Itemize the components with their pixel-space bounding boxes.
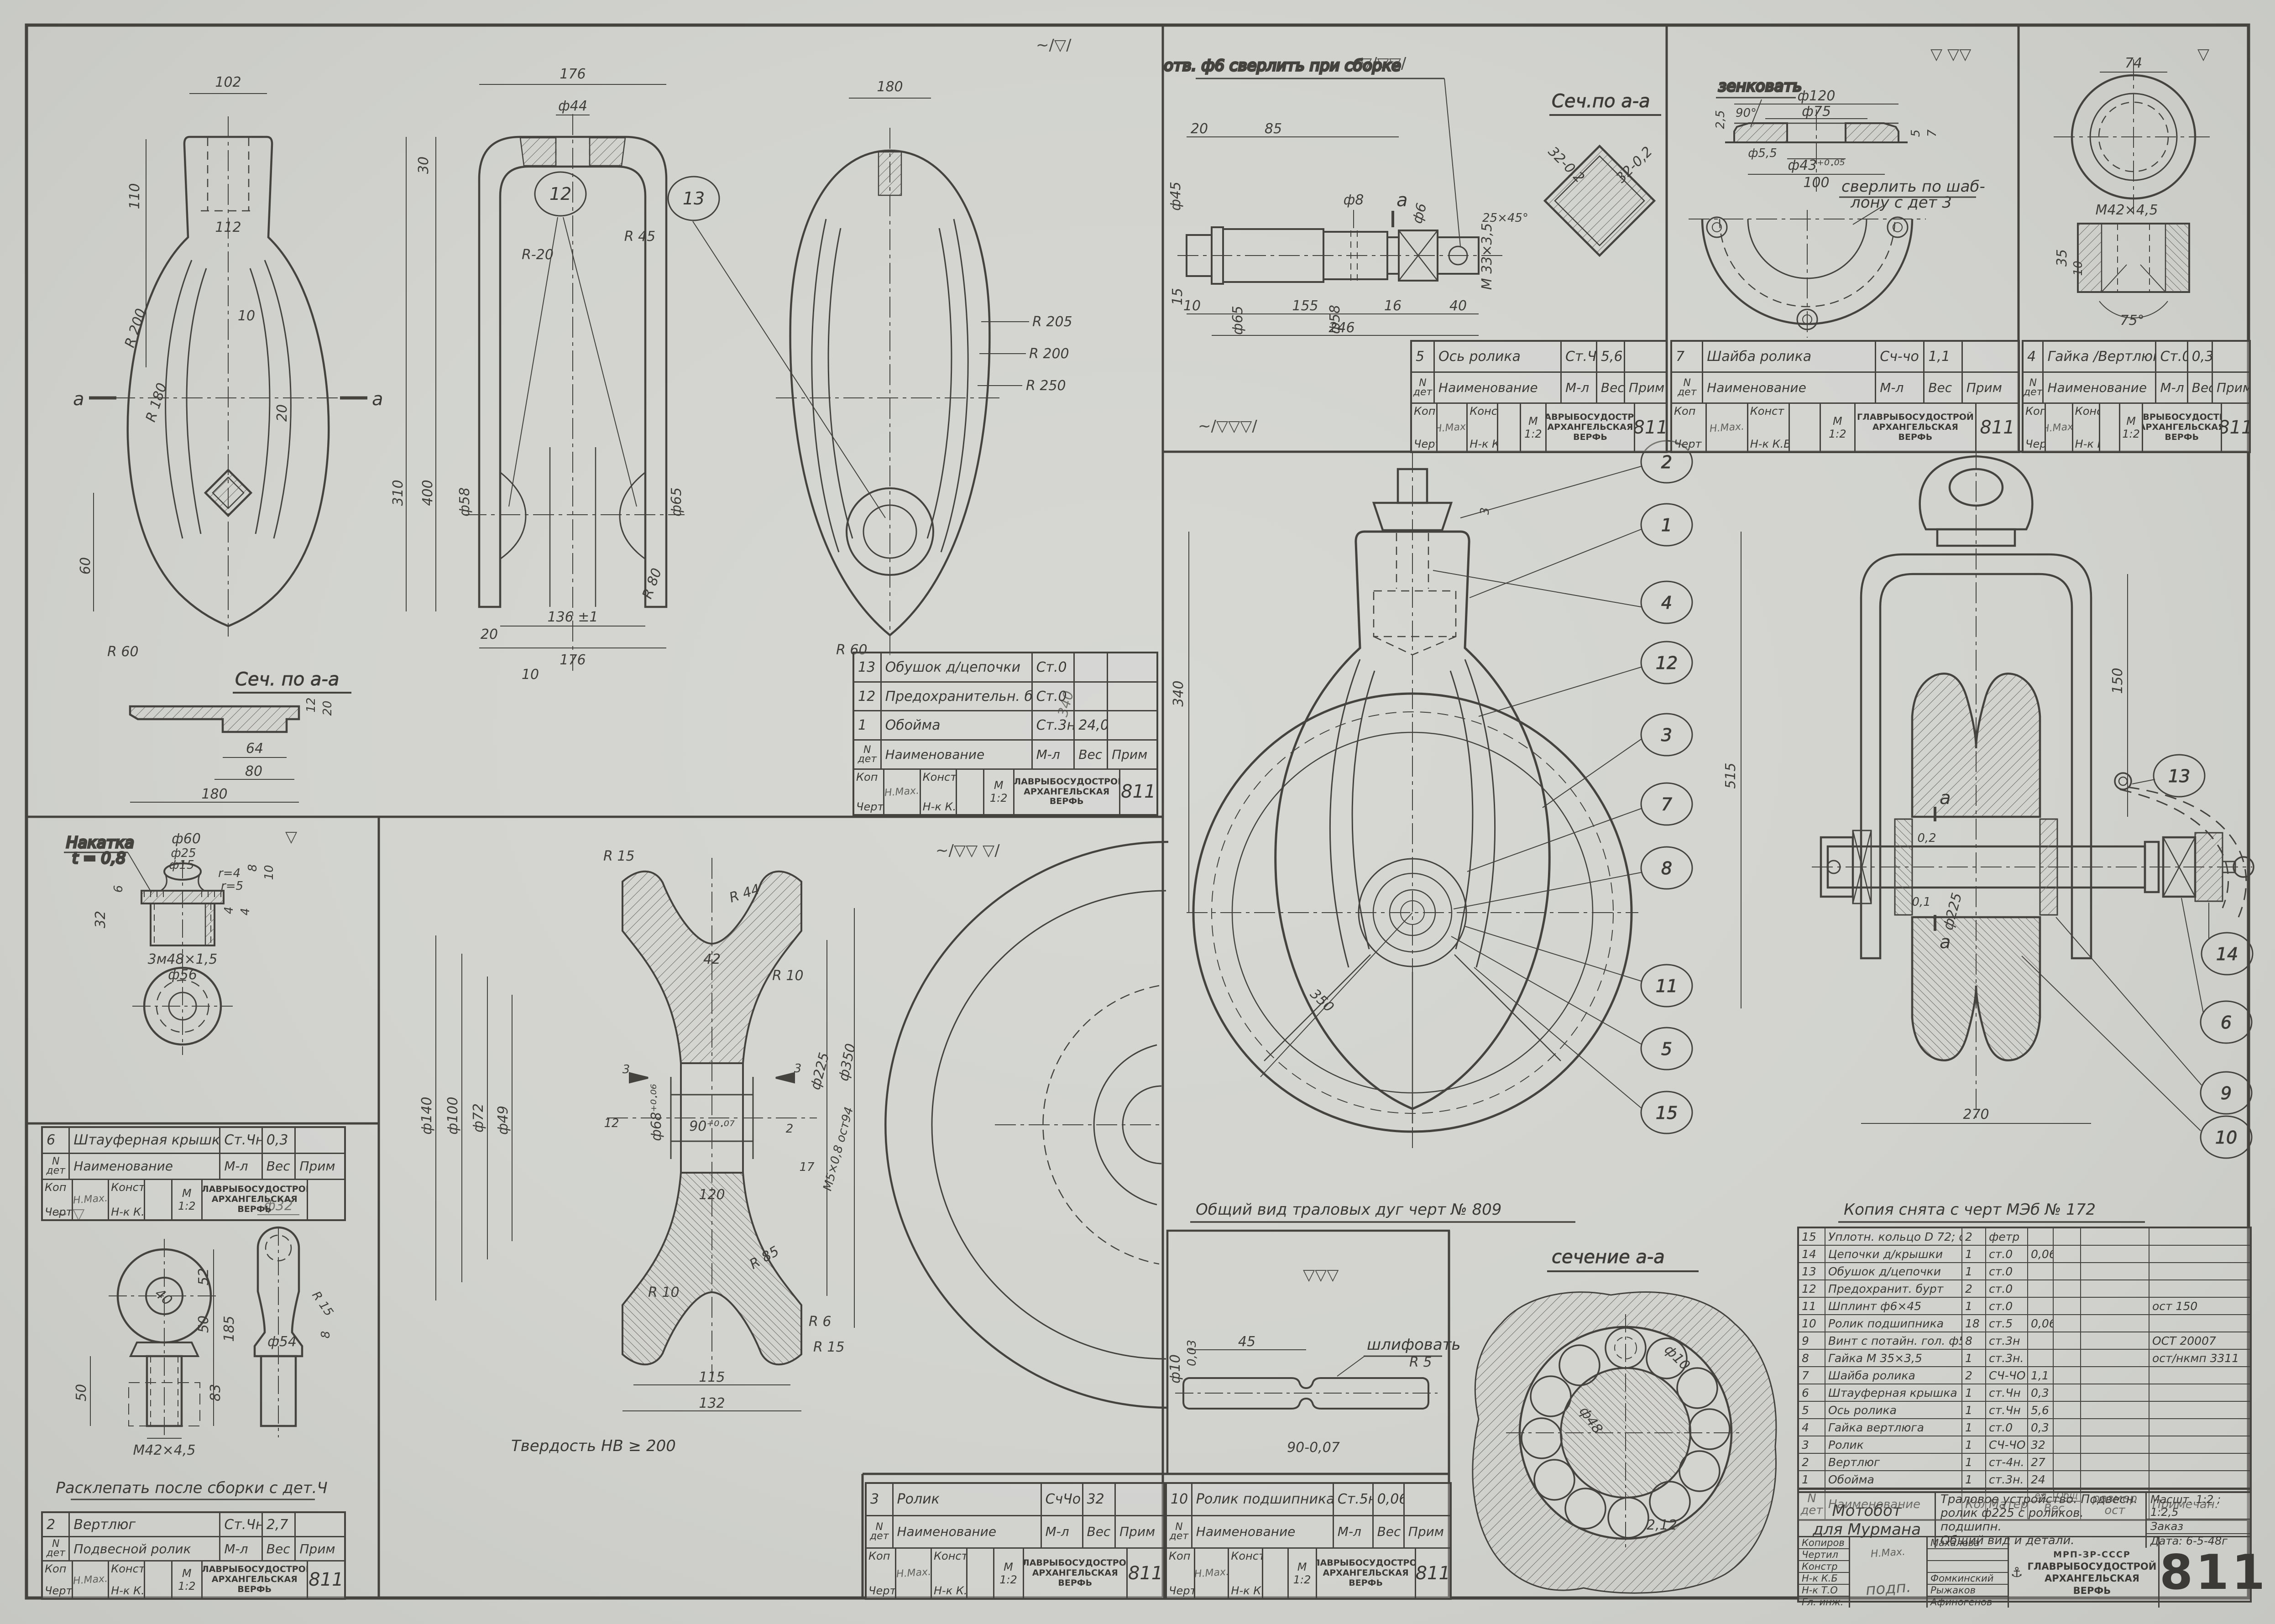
cell-qty: 2 [1962, 1367, 1986, 1384]
hdr-prim: Прим [296, 1154, 344, 1179]
dim-label: 80 [245, 763, 262, 779]
dim-label: 12 [304, 697, 318, 712]
dim-label: 110 [127, 183, 143, 209]
section-aa-left-view: Сеч. по а-а [130, 669, 351, 802]
cell-name: Ролик [1825, 1436, 1962, 1453]
table-row: 15 Уплотн. кольцо D 72; d-47,63мм 2 фетр [1799, 1228, 2250, 1246]
cell-qty: 8 [1962, 1332, 1986, 1349]
dim-label: ф49 [495, 1106, 511, 1135]
dim-label: 8 [246, 864, 260, 872]
sign-roles: КопировЧертил КонстрН-к К.Б Н-к Т.ОГл. и… [1799, 1537, 1850, 1608]
dim-label: 50 [73, 1384, 89, 1401]
cell-num: 5 [1799, 1402, 1825, 1418]
cell-wt-total [2054, 1350, 2081, 1366]
dim-label: R 15 [603, 848, 635, 864]
cell-wt-unit [2028, 1263, 2054, 1279]
balloon: 5 [1661, 1039, 1672, 1059]
cell-wt-unit: 0,06 [2028, 1315, 2054, 1332]
hdr-ves: Вес [263, 1537, 296, 1560]
cell-qty: 1 [1962, 1419, 1986, 1436]
balloon: 9 [2221, 1083, 2232, 1103]
hdr-prim: Прим [1108, 741, 1156, 768]
hdr-ndet: Nдет [1672, 373, 1703, 402]
cell-num: 15 [1799, 1228, 1825, 1245]
cell-num: 1 [1799, 1471, 1825, 1488]
parts-list-table: 15 Уплотн. кольцо D 72; d-47,63мм 2 фетр… [1797, 1227, 2252, 1521]
cell-wt-unit: 0,06 [2028, 1246, 2054, 1262]
org-abbr: МРП-ЗР-СССР [2053, 1550, 2131, 1560]
cell-wt-unit [2028, 1228, 2054, 1245]
org-main: ГЛАВРЫБОСУДОСТРОЙ [2028, 1561, 2157, 1572]
part-name: Шайба ролика [1703, 342, 1876, 371]
dim-label: 0,2 [1917, 831, 1936, 845]
cell-qty: 1 [1962, 1471, 1986, 1488]
cell-num: 4 [1799, 1419, 1825, 1436]
assembly-side-balloons: 13 14 6 9 10 [2022, 755, 2253, 1158]
axle-view: отв. ф6 сверлить при сборке [1164, 57, 1506, 335]
dim-label: 102 [215, 74, 241, 90]
cell-num: 2 [1799, 1454, 1825, 1470]
dim-label: 85 [1265, 121, 1282, 137]
section-title: сечение а-а [1552, 1247, 1665, 1268]
org-number: 811 [1977, 404, 2018, 451]
drawing-number: 811 [2160, 1537, 2268, 1608]
dim-label: 20 [274, 404, 290, 422]
section-title: Сеч.по а-а [1552, 91, 1650, 112]
dim-label: R 250 [1026, 378, 1066, 394]
dim-label: ф44 [558, 98, 587, 114]
cell-wt-total [2054, 1402, 2081, 1418]
anchor-logo-icon: ⚓ [2011, 1565, 2023, 1581]
cell-num: 12 [1799, 1280, 1825, 1297]
part-wt: 32 [1083, 1484, 1116, 1515]
org-sig: Н.Мах. [896, 1549, 932, 1598]
dim-label: ф68⁺⁰·⁰⁶ [649, 1084, 664, 1141]
note-copy: Копия снята с черт МЭб № 172 [1844, 1201, 2096, 1219]
hdr-name: Наименование [894, 1516, 1042, 1547]
dim-label: 515 [1723, 762, 1739, 789]
cell-num: 3 [1799, 1436, 1825, 1453]
dim-label: 64 [246, 741, 263, 757]
sign-signatures: Н.Мах. подп. [1850, 1537, 1928, 1608]
org-number [308, 1180, 344, 1219]
mini-titleblock-oboyma: 13Обушок д/цепочкиСт.0 12Предохранительн… [852, 652, 1158, 816]
part-prim [1108, 711, 1156, 739]
dim-label: 10 [522, 667, 539, 683]
cell-wt-total [2054, 1367, 2081, 1384]
dim-label: ф75 [1802, 104, 1831, 120]
cell-wt-unit: 0,3 [2028, 1384, 2054, 1401]
cell-size [2081, 1384, 2149, 1401]
cell-mat: ст.0 [1986, 1419, 2028, 1436]
dim-label: М5×0,8 ост94 [821, 1106, 856, 1192]
dim-label: 40 [152, 1285, 175, 1309]
cell-wt-unit: 0,3 [2028, 1419, 2054, 1436]
mini-titleblock-roller: 10Ролик подшипникаСт.5н0,06 NдетНаименов… [1165, 1482, 1452, 1600]
mini-titleblock-axle: 5Ось роликаСт.Чн5,6 NдетНаименованиеМ-лВ… [1410, 340, 1668, 453]
cell-name: Винт с потайн. гол. ф5×18 [1825, 1332, 1962, 1349]
org-name: ГЛАВРЫБОСУДОСТРОЙАРХАНГЕЛЬСКАЯВЕРФЬ [2143, 404, 2222, 451]
part-mat: Ст.5н [1334, 1484, 1374, 1515]
dim-label: 7 [1925, 129, 1939, 137]
dim-label: 0,1 [1912, 895, 1930, 909]
dim-label: R 200 [1029, 346, 1069, 362]
org-kop-chert: КопЧерт [43, 1561, 73, 1598]
dim-label: 74 [2125, 55, 2142, 71]
table-row: 11 Шплинт ф6×45 1 ст.0 ост 150 [1799, 1298, 2250, 1315]
dim-label: ф225 [807, 1051, 832, 1091]
dim-label: М42×4,5 [133, 1442, 196, 1458]
org-blank [1790, 404, 1821, 451]
finish-mark: ▽ ▽▽ [1930, 45, 1972, 63]
dim-label: r=4 [218, 867, 241, 880]
part-name: Штауферная крышка [70, 1128, 220, 1153]
dim-label: М 33×3,5 [1479, 223, 1495, 290]
org-kop-chert: КопЧерт [1412, 404, 1438, 451]
scale-label: Масшт. 1:2 ; 1:2,5 [2147, 1493, 2250, 1520]
hdr-prim: Прим [1405, 1516, 1450, 1547]
cell-note [2149, 1471, 2250, 1488]
org-scale: М1:2 [1521, 404, 1547, 451]
part-num: 6 [43, 1128, 70, 1153]
dim-label: 310 [390, 480, 406, 506]
org-blank [1498, 404, 1521, 451]
dim-label: 60 [78, 557, 94, 574]
hdr-name: Наименование [1703, 373, 1876, 402]
org-sig: Н.Мах. [73, 1180, 109, 1219]
cell-mat: ст.3н. [1986, 1471, 2028, 1488]
org-konst: КонстН-к К.Б [109, 1561, 145, 1598]
org-blank [145, 1561, 172, 1598]
part-num: 12 [854, 683, 882, 710]
hdr-name: Наименование [70, 1154, 220, 1179]
stauffer-view: Накатка t = 0,8 [64, 834, 233, 1055]
section-mark: а [1940, 932, 1951, 953]
table-row: 7 Шайба ролика 2 СЧ-ЧО 1,1 [1799, 1367, 2250, 1384]
cell-name: Обушок д/цепочки [1825, 1263, 1962, 1279]
hdr-ves: Вес [1075, 741, 1108, 768]
part-wt: 0,3 [263, 1128, 296, 1153]
cell-note [2149, 1419, 2250, 1436]
cell-wt-unit [2028, 1280, 2054, 1297]
dim-label: 6 [112, 885, 126, 893]
cell-note [2149, 1263, 2250, 1279]
cell-num: 10 [1799, 1315, 1825, 1332]
hdr-ml: М-л [1562, 373, 1597, 402]
part-name: Гайка /Вертлюга/ [2044, 342, 2156, 371]
note-general-view: Общий вид траловых дуг черт № 809 [1196, 1201, 1501, 1219]
cell-qty: 1 [1962, 1384, 1986, 1401]
part-num: 10 [1167, 1484, 1192, 1515]
org-name: ГЛАВРЫБОСУДОСТРОЙАРХАНГЕЛЬСКАЯВЕРФЬ [1547, 404, 1636, 451]
org-blank [1263, 1549, 1289, 1598]
dim-label: R 80 [639, 566, 665, 601]
bearing-roller-dims: 45 ф10 R 5 90-0,07 0,03 шлифовать [1167, 1334, 1461, 1456]
frame-front-view [89, 94, 436, 637]
dim-label: 3 [622, 1063, 630, 1076]
part-num: 2 [43, 1513, 70, 1536]
org-number: 811 [1120, 770, 1156, 814]
cell-qty: 1 [1962, 1263, 1986, 1279]
cell-wt-total [2054, 1298, 2081, 1314]
cell-name: Обойма [1825, 1471, 1962, 1488]
dim-label: 25×45° [1482, 211, 1528, 225]
part-prim [1116, 1484, 1163, 1515]
cell-size [2081, 1280, 2149, 1297]
section-mark: а [1396, 190, 1408, 211]
balloon: 11 [1656, 976, 1678, 996]
org-sig: Н.Мах. [1707, 404, 1748, 451]
table-row: 4 Гайка вертлюга 1 ст.0 0,3 [1799, 1419, 2250, 1436]
part-mat: СчЧо [1042, 1484, 1083, 1515]
part-name: Обушок д/цепочки [882, 653, 1033, 681]
cell-note: ОСТ 20007 [2149, 1332, 2250, 1349]
sign-names: Махалова Фомкинский РыжаковАфиногенов [1928, 1537, 2009, 1608]
balloon: 15 [1656, 1103, 1678, 1123]
note-zenkovat: зенковать [1718, 77, 1802, 95]
dim-label: 4 [222, 907, 236, 914]
hdr-name: Наименование [1435, 373, 1562, 402]
hdr-ml: М-л [1334, 1516, 1374, 1547]
dim-label: 83 [208, 1384, 224, 1401]
cell-wt-total [2054, 1436, 2081, 1453]
dim-label: 120 [699, 1187, 725, 1203]
swivel-dims: 40 52 50 185 83 50 М42×4,5 ф32 R 15 8 ф5… [56, 1198, 336, 1499]
dim-label: М42×4,5 [2096, 202, 2158, 218]
cell-size [2081, 1263, 2149, 1279]
cell-mat: ст.3н [1986, 1332, 2028, 1349]
cell-note: ост/нкмп 3311 [2149, 1350, 2250, 1366]
balloon: 2 [1661, 452, 1672, 472]
part-mat: Сч-чо [1876, 342, 1925, 371]
cell-size [2081, 1298, 2149, 1314]
dim-label: 16 [1384, 298, 1402, 314]
main-title-block: Мотоботдля Мурмана Траловое устройство. … [1797, 1491, 2252, 1603]
org-kop-chert: КопЧерт [43, 1180, 73, 1219]
hdr-prim: Прим [1963, 373, 2018, 402]
org-number: 811 [2222, 404, 2249, 451]
cell-mat: ст.Чн [1986, 1384, 2028, 1401]
dim-label: 180 [877, 79, 903, 95]
cell-note: ост 150 [2149, 1298, 2250, 1314]
dim-label: 20 [481, 627, 498, 642]
cell-note [2149, 1454, 2250, 1470]
org-number: 811 [1635, 404, 1666, 451]
dim-label: ф6 [1409, 201, 1430, 225]
dim-label: R 15 [309, 1289, 336, 1319]
note-grind: шлифовать [1367, 1336, 1461, 1354]
dim-label: R 10 [772, 968, 804, 984]
cell-qty: 1 [1962, 1350, 1986, 1366]
dim-label: R 15 [813, 1339, 845, 1355]
hdr-ves: Вес [1597, 373, 1625, 402]
dim-label: 10 [238, 308, 255, 324]
part-prim [1963, 342, 2018, 371]
cell-size [2081, 1246, 2149, 1262]
dim-label: 2,5 [1714, 110, 1727, 129]
org-number: 811 [308, 1561, 344, 1598]
section-title: Сеч. по а-а [235, 669, 339, 690]
balloon: 7 [1661, 794, 1672, 815]
org-scale: М1:2 [1289, 1549, 1317, 1598]
cell-wt-total [2054, 1280, 2081, 1297]
hdr-prim: Прим [2213, 373, 2249, 402]
org-kop-chert: КопЧерт [854, 770, 884, 814]
balloon: 3 [1661, 725, 1672, 745]
org-logo-cell: ⚓ МРП-ЗР-СССР ГЛАВРЫБОСУДОСТРОЙ АРХАНГЕЛ… [2009, 1537, 2160, 1608]
cell-mat: ст.3н. [1986, 1350, 2028, 1366]
cell-wt-total [2054, 1263, 2081, 1279]
part-prim [2213, 342, 2249, 371]
dim-label: 5 [1909, 130, 1923, 137]
dim-label: 185 [221, 1316, 237, 1342]
finish-mark: ▽ [285, 828, 298, 846]
part-wt [1075, 683, 1108, 710]
dim-label: 4 [239, 908, 252, 916]
hdr-ndet: Nдет [1167, 1516, 1192, 1547]
cell-wt-total [2054, 1419, 2081, 1436]
sheave-view [436, 842, 1168, 1411]
org-scale: М1:2 [173, 1180, 203, 1219]
frame-side-view [465, 84, 885, 671]
org-scale: М1:2 [173, 1561, 203, 1598]
dim-label: 50 [196, 1316, 212, 1333]
org-sig: Н.Мах. [2046, 404, 2073, 451]
balloon-13: 13 [683, 188, 705, 209]
part-num: 3 [867, 1484, 894, 1515]
cell-num: 8 [1799, 1350, 1825, 1366]
dim-label: 42 [703, 951, 721, 967]
dim-label: 12 [604, 1117, 619, 1130]
balloon: 6 [2221, 1013, 2232, 1033]
dim-label: ф350 [836, 1042, 859, 1082]
cell-qty: 1 [1962, 1454, 1986, 1470]
dim-label: 136 ±1 [547, 609, 598, 625]
dim-label: 90-0,07 [1287, 1440, 1340, 1456]
org-konst: КонстН-к К.Б [2073, 404, 2100, 451]
part-name: Предохранительн. бурт [882, 683, 1033, 710]
part-wt [1075, 653, 1108, 681]
table-row: 1 Обойма 1 ст.3н. 24 [1799, 1471, 2250, 1488]
hdr-name: Подвесной ролик [70, 1537, 220, 1560]
table-row: 3 Ролик 1 СЧ-ЧО 32 [1799, 1436, 2250, 1454]
cell-name: Предохранит. бурт [1825, 1280, 1962, 1297]
org-sig: Н.Мах. [884, 770, 920, 814]
cell-mat: ст.5 [1986, 1315, 2028, 1332]
org-kop-chert: КопЧерт [1167, 1549, 1195, 1598]
org-name: ГЛАВРЫБОСУДОСТРОЙАРХАНГЕЛЬСКАЯВЕРФЬ [203, 1180, 308, 1219]
cell-qty: 2 [1962, 1280, 1986, 1297]
hdr-ml: М-л [2156, 373, 2188, 402]
hdr-name: Наименование [1192, 1516, 1334, 1547]
org-scale: М1:2 [984, 770, 1015, 814]
part-mat: Ст.Чн [220, 1128, 262, 1153]
frame-front-dims: 102 110 112 30 10 20 R 180 R 200 310 400… [73, 74, 436, 660]
cell-num: 9 [1799, 1332, 1825, 1349]
part-wt: 2,7 [263, 1513, 296, 1536]
cell-wt-total [2054, 1228, 2081, 1245]
hdr-ves: Вес [1374, 1516, 1405, 1547]
drawing-sheet: ∼/▽/ ▽/▽▽/ ▽ ▽▽ ▽ ▽ ∼ ▽ ∼/▽▽ ▽/ ∼/▽▽▽/ ▽… [0, 0, 2275, 1624]
dim-label: R 60 [107, 644, 139, 660]
cell-mat: СЧ-ЧО [1986, 1367, 2028, 1384]
dim-label: ф65 [1230, 306, 1246, 335]
cell-mat: ст.0 [1986, 1280, 2028, 1297]
balloon-12: 12 [549, 184, 571, 204]
org-konst: КонстН-к К.Б [109, 1180, 145, 1219]
dim-label: ф58 [457, 487, 473, 517]
org-blank [968, 1549, 994, 1598]
part-prim [296, 1513, 344, 1536]
org-werf: ВЕРФЬ [2073, 1585, 2111, 1596]
part-mat: Ст.0 [1033, 683, 1075, 710]
dim-label: ф58 [1327, 305, 1343, 334]
org-kop-chert: КопЧерт [1672, 404, 1707, 451]
cell-wt-unit: 27 [2028, 1454, 2054, 1470]
balloon: 12 [1656, 653, 1678, 673]
dim-label: 30 [416, 157, 432, 174]
dim-label: ф54 [267, 1334, 297, 1350]
part-wt: 5,6 [1597, 342, 1625, 371]
dim-label: 15 [1170, 288, 1186, 305]
cell-wt-total [2054, 1384, 2081, 1401]
dim-label: 176 [560, 66, 586, 82]
cell-wt-unit [2028, 1332, 2054, 1349]
cell-name: Ось ролика [1825, 1402, 1962, 1418]
dim-label: r=5 [221, 879, 243, 893]
axle-dims: 20 85 ф45 ф8 ф6 М 33×3,5 25×45° 10 155 1… [1168, 121, 1528, 336]
finish-mark: ▽ [2197, 45, 2210, 63]
cell-size [2081, 1315, 2149, 1332]
cell-name: Штауферная крышка [1825, 1384, 1962, 1401]
cell-note [2149, 1315, 2250, 1332]
part-prim [1405, 1484, 1450, 1515]
dim-label: ф43⁺⁰·⁰⁵ [1788, 157, 1845, 173]
cell-size [2081, 1332, 2149, 1349]
dim-label: ф8 [1344, 192, 1364, 208]
part-name: Ролик подшипника [1192, 1484, 1334, 1515]
order-label: Заказ [2147, 1520, 2250, 1534]
hdr-ndet: Nдет [2024, 373, 2044, 402]
dim-label: 150 [2110, 668, 2126, 694]
org-sig: Н.Мах. [73, 1561, 109, 1598]
org-sig: Н.Мах. [1195, 1549, 1229, 1598]
cell-size [2081, 1228, 2149, 1245]
org-scale: М1:2 [994, 1549, 1024, 1598]
frame-oval-view [776, 98, 1029, 657]
hdr-ml: М-л [1876, 373, 1925, 402]
dim-label: 40 [1449, 298, 1467, 314]
cell-size [2081, 1454, 2149, 1470]
part-prim [296, 1128, 344, 1153]
part-prim [1108, 653, 1156, 681]
mini-titleblock-nut: 4Гайка /Вертлюга/Ст.00,3 NдетНаименовани… [2022, 340, 2251, 453]
org-name: ГЛАВРЫБОСУДОСТРОЙАРХАНГЕЛЬСКАЯВЕРФЬ [1856, 404, 1977, 451]
dim-label: 90⁺⁰·⁰⁷ [689, 1118, 735, 1134]
dim-label: 176 [560, 652, 586, 668]
cell-name: Шплинт ф6×45 [1825, 1298, 1962, 1314]
cell-size [2081, 1402, 2149, 1418]
mini-titleblock-swivel: 2ВертлюгСт.Чн2,7 NдетПодвесной роликМ-лВ… [41, 1511, 346, 1600]
hdr-name: Наименование [2044, 373, 2156, 402]
dim-label: 90° [1736, 106, 1757, 120]
dim-label: ф65 [669, 487, 685, 517]
part-mat: Ст.0 [2156, 342, 2188, 371]
cell-name: Вертлюг [1825, 1454, 1962, 1470]
hdr-ndet: Nдет [43, 1154, 70, 1179]
hdr-ml: М-л [1042, 1516, 1083, 1547]
table-row: 8 Гайка М 35×3,5 1 ст.3н. ост/нкмп 3311 [1799, 1350, 2250, 1367]
